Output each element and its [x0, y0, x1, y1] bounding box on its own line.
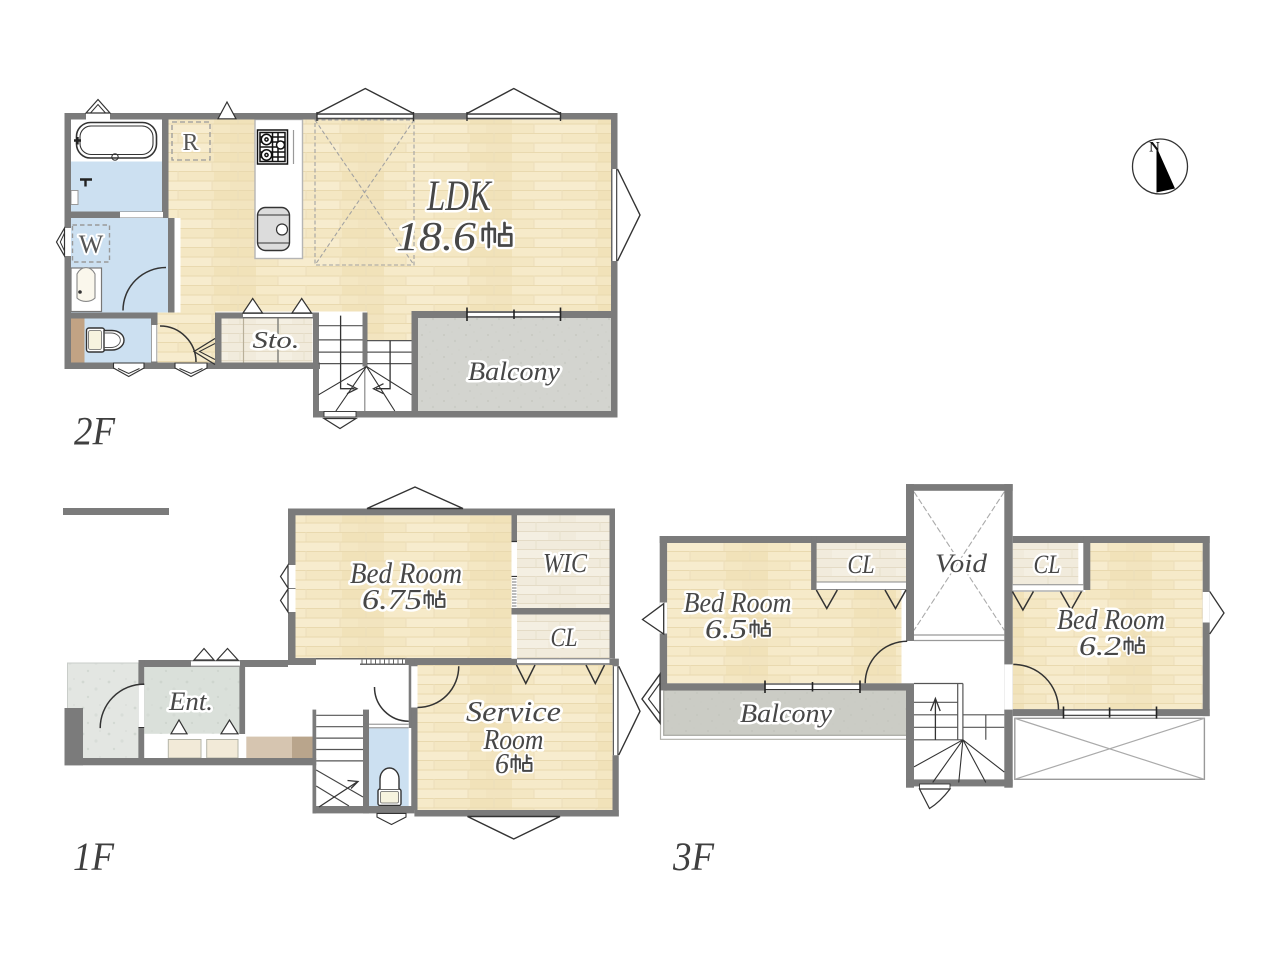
svg-text:Balcony: Balcony [740, 699, 832, 728]
svg-text:R: R [182, 130, 198, 156]
svg-text:Ent.: Ent. [168, 687, 213, 716]
svg-text:WIC: WIC [543, 548, 588, 578]
svg-text:Void: Void [935, 549, 988, 578]
svg-text:Sto.: Sto. [253, 328, 300, 354]
svg-text:1F: 1F [73, 834, 115, 879]
svg-text:Room: Room [483, 724, 544, 756]
svg-text:3F: 3F [672, 834, 714, 879]
svg-text:6.5: 6.5 [705, 614, 747, 644]
svg-text:Balcony: Balcony [468, 357, 560, 386]
svg-text:CL: CL [551, 623, 578, 652]
svg-text:6: 6 [495, 749, 509, 780]
svg-text:CL: CL [848, 550, 875, 579]
svg-text:N: N [1149, 140, 1160, 156]
svg-text:6.75: 6.75 [362, 585, 422, 616]
svg-text:W: W [79, 230, 104, 259]
svg-text:18.6: 18.6 [396, 213, 477, 259]
svg-text:CL: CL [1034, 550, 1061, 579]
svg-text:6.2: 6.2 [1079, 631, 1121, 661]
svg-text:2F: 2F [74, 409, 116, 454]
